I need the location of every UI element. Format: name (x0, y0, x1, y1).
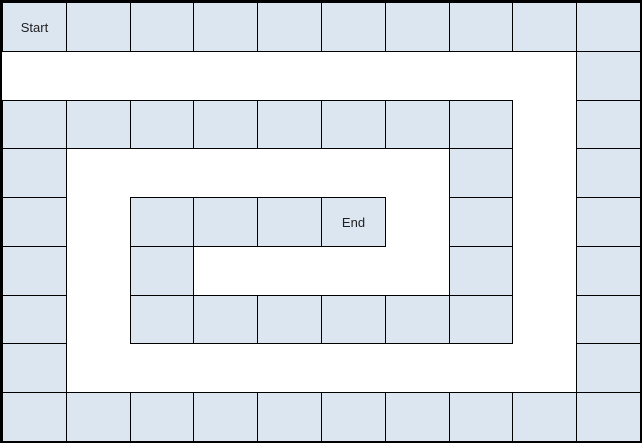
board-cell[interactable] (2, 295, 67, 344)
board-cell[interactable] (2, 197, 67, 247)
board-cell[interactable] (2, 148, 67, 198)
board-cell[interactable] (385, 100, 450, 149)
board-cell[interactable] (130, 295, 194, 344)
board-cell[interactable] (321, 100, 386, 149)
board-cell[interactable] (2, 246, 67, 296)
board-cell[interactable] (449, 246, 513, 296)
board-cell[interactable] (449, 148, 513, 198)
board-cell[interactable] (576, 295, 641, 344)
board-cell[interactable] (576, 343, 641, 393)
board-cell[interactable] (257, 2, 322, 52)
board-cell[interactable] (130, 197, 194, 247)
board-cell[interactable] (193, 295, 258, 344)
board-cell[interactable] (449, 2, 513, 52)
board-cell[interactable] (257, 392, 322, 442)
board-cell[interactable] (449, 197, 513, 247)
board-cell[interactable] (257, 100, 322, 149)
start-label: Start (21, 21, 48, 34)
game-board: StartEnd (0, 0, 642, 443)
board-cell[interactable] (385, 2, 450, 52)
board-cell[interactable] (66, 2, 131, 52)
board-cell[interactable] (130, 2, 194, 52)
board-cell[interactable] (576, 246, 641, 296)
board-cell[interactable] (576, 2, 641, 52)
board-cell[interactable] (512, 2, 577, 52)
board-cell[interactable] (66, 100, 131, 149)
board-cell[interactable] (257, 295, 322, 344)
board-cell[interactable] (193, 392, 258, 442)
board-cell[interactable] (385, 295, 450, 344)
board-cell[interactable] (512, 392, 577, 442)
board-cell[interactable] (321, 295, 386, 344)
board-cell[interactable] (257, 197, 322, 247)
board-cell[interactable] (2, 392, 67, 442)
board-cell[interactable] (193, 100, 258, 149)
board-cell[interactable] (449, 295, 513, 344)
board-cell[interactable] (449, 392, 513, 442)
end-cell[interactable]: End (321, 197, 386, 247)
board-cell[interactable] (130, 392, 194, 442)
board-cell[interactable] (130, 246, 194, 296)
start-cell[interactable]: Start (2, 2, 67, 52)
board-cell[interactable] (130, 100, 194, 149)
board-cell[interactable] (385, 392, 450, 442)
board-cell[interactable] (576, 100, 641, 149)
end-label: End (342, 216, 365, 229)
board-cell[interactable] (576, 148, 641, 198)
board-cell[interactable] (2, 343, 67, 393)
board-cell[interactable] (66, 392, 131, 442)
board-cell[interactable] (2, 100, 67, 149)
board-cell[interactable] (576, 51, 641, 101)
board-cell[interactable] (193, 2, 258, 52)
board-cell[interactable] (576, 392, 641, 442)
board-cell[interactable] (449, 100, 513, 149)
board-cell[interactable] (193, 197, 258, 247)
board-cell[interactable] (321, 392, 386, 442)
board-cell[interactable] (321, 2, 386, 52)
board-cell[interactable] (576, 197, 641, 247)
